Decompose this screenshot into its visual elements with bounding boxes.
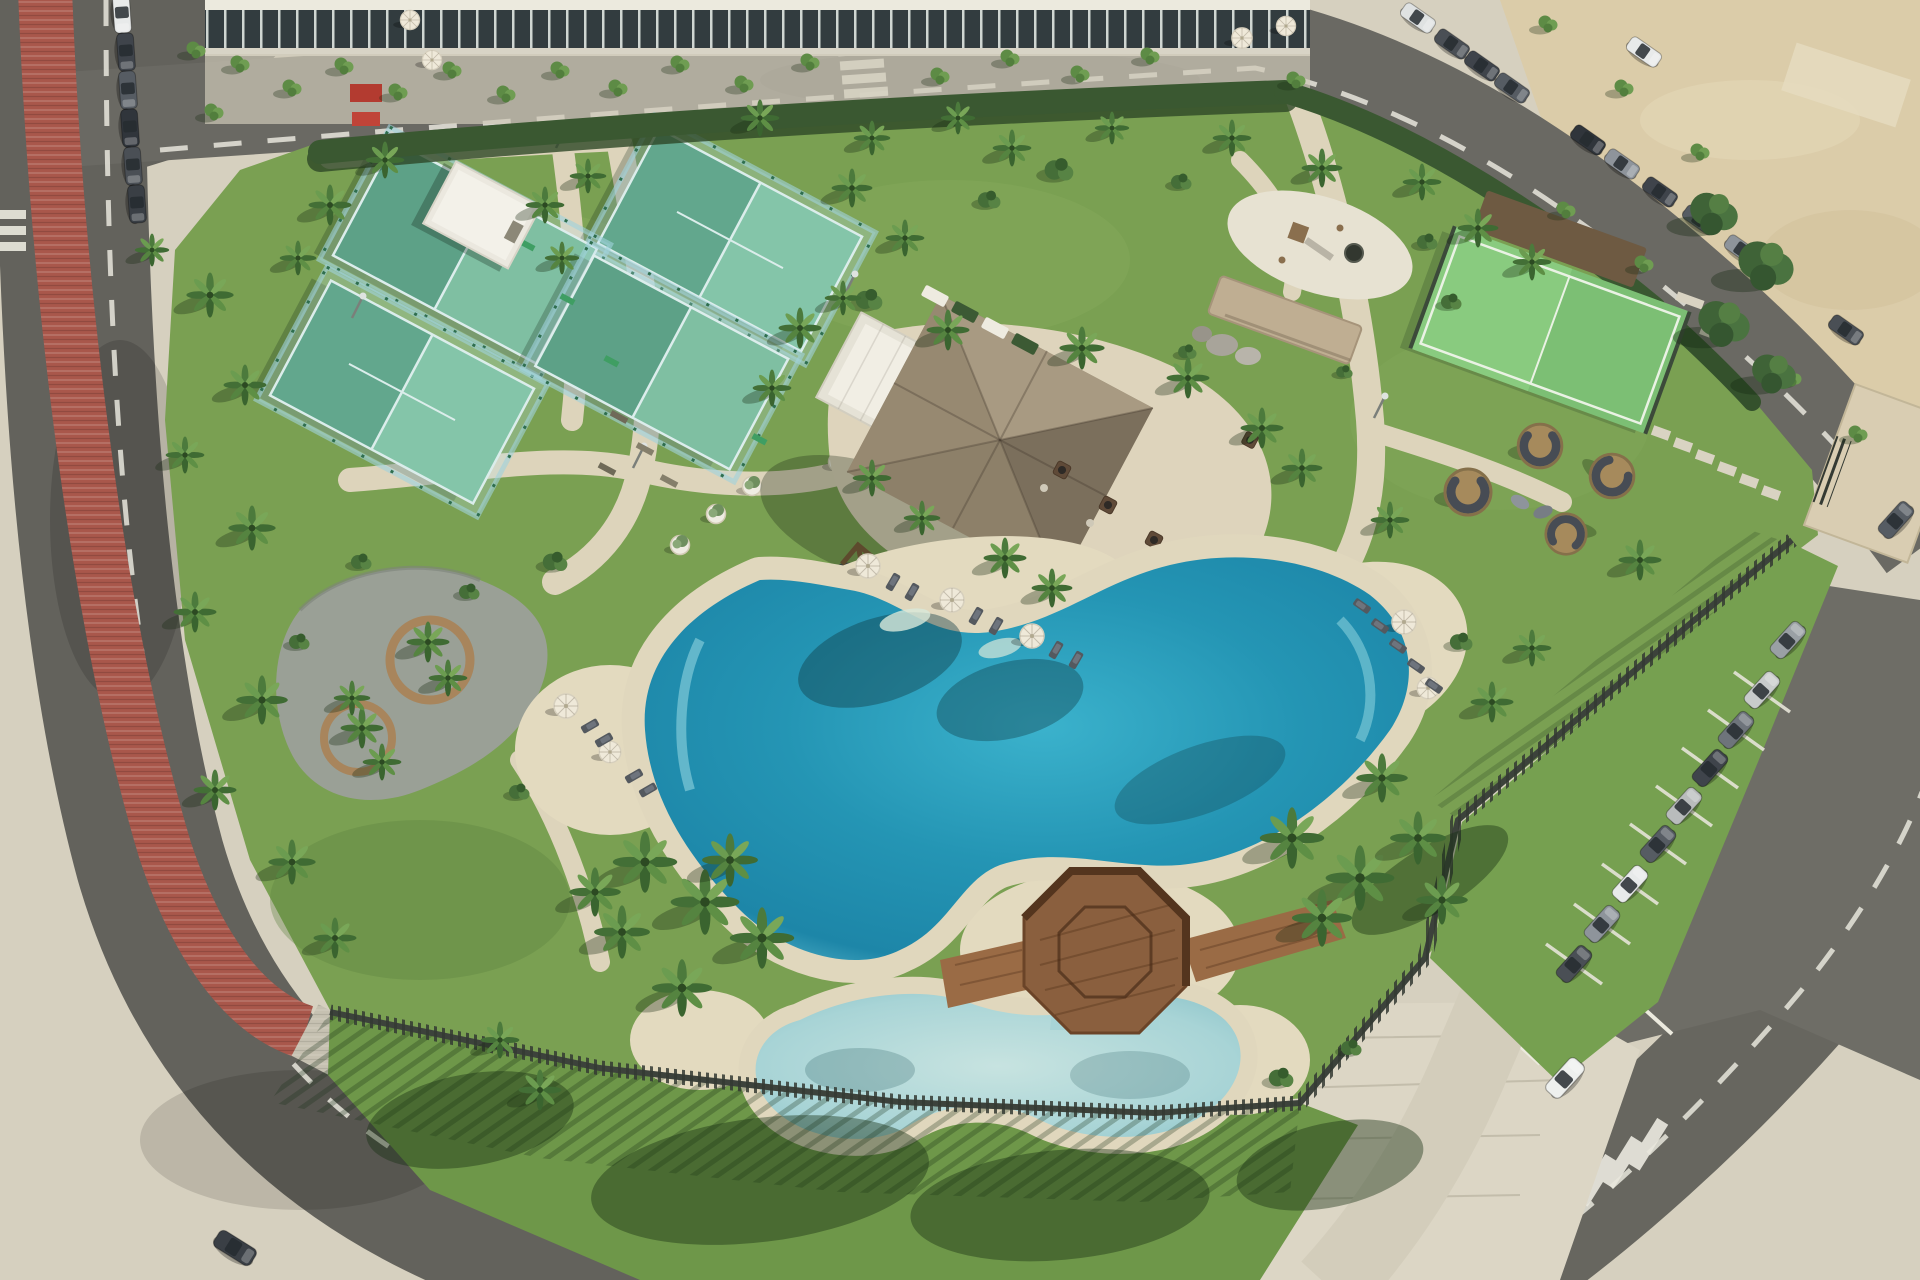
trampoline <box>1345 244 1363 262</box>
scene-svg <box>0 0 1920 1280</box>
building-parapet <box>205 0 1310 10</box>
red-container <box>352 112 380 126</box>
aerial-photo <box>0 0 1920 1280</box>
red-container <box>350 84 382 102</box>
